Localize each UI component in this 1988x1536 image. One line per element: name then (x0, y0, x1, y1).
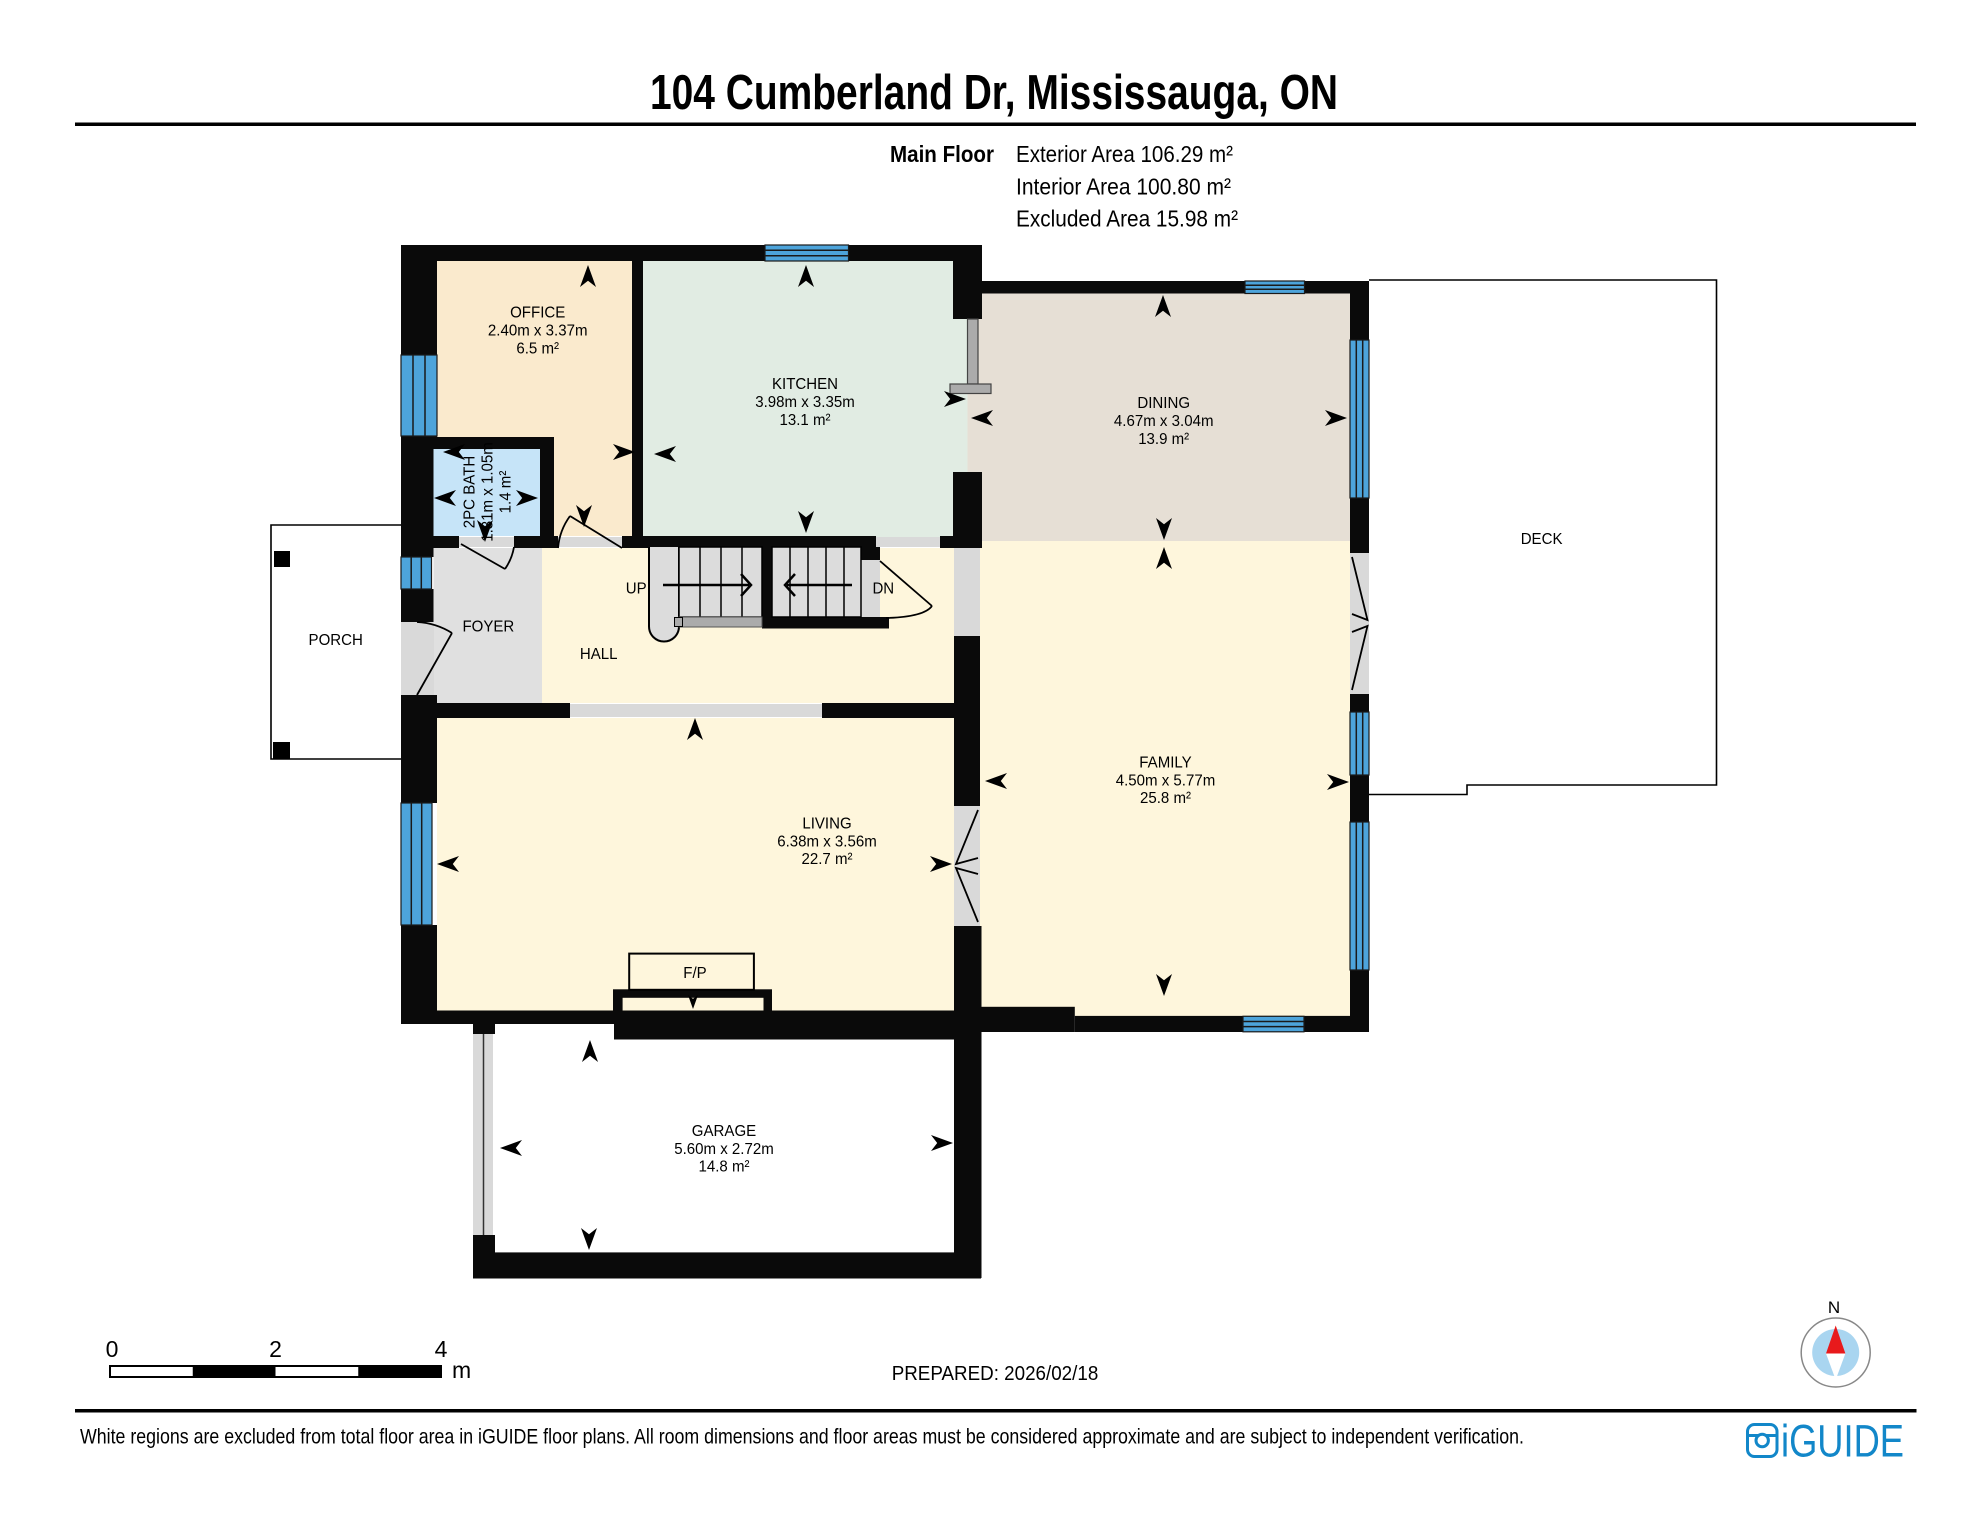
svg-text:0: 0 (106, 1336, 119, 1362)
svg-text:13.9 m²: 13.9 m² (1138, 431, 1190, 448)
svg-text:4.50m x 5.77m: 4.50m x 5.77m (1116, 772, 1216, 789)
svg-text:3.98m x 3.35m: 3.98m x 3.35m (755, 394, 855, 411)
svg-text:14.8 m²: 14.8 m² (699, 1159, 751, 1176)
svg-text:FOYER: FOYER (463, 619, 515, 636)
svg-text:PORCH: PORCH (309, 632, 363, 649)
svg-text:5.60m x 2.72m: 5.60m x 2.72m (674, 1141, 774, 1158)
svg-text:OFFICE: OFFICE (510, 305, 565, 322)
svg-text:GARAGE: GARAGE (692, 1123, 756, 1140)
svg-text:4.67m x 3.04m: 4.67m x 3.04m (1114, 413, 1214, 430)
svg-text:1.4 m²: 1.4 m² (497, 470, 514, 513)
svg-text:13.1 m²: 13.1 m² (780, 412, 832, 429)
svg-text:25.8 m²: 25.8 m² (1140, 790, 1192, 807)
svg-text:2: 2 (269, 1336, 282, 1362)
svg-text:22.7 m²: 22.7 m² (802, 851, 854, 868)
svg-text:iGUIDE: iGUIDE (1781, 1416, 1904, 1467)
svg-text:104 Cumberland Dr, Mississauga: 104 Cumberland Dr, Mississauga, ON (650, 66, 1338, 120)
svg-text:White regions are excluded fro: White regions are excluded from total fl… (80, 1426, 1524, 1449)
svg-text:6.38m x 3.56m: 6.38m x 3.56m (777, 833, 877, 850)
svg-text:DECK: DECK (1521, 531, 1563, 548)
svg-text:PREPARED: 2026/02/18: PREPARED: 2026/02/18 (892, 1363, 1099, 1385)
svg-text:DINING: DINING (1137, 395, 1190, 412)
svg-text:2.40m x 3.37m: 2.40m x 3.37m (488, 323, 588, 340)
svg-text:6.5 m²: 6.5 m² (516, 340, 559, 357)
svg-text:UP: UP (626, 580, 647, 597)
svg-text:FAMILY: FAMILY (1139, 755, 1192, 772)
svg-text:4: 4 (435, 1336, 448, 1362)
svg-text:N: N (1828, 1298, 1840, 1317)
svg-text:KITCHEN: KITCHEN (772, 376, 838, 393)
svg-text:1.31m x 1.05m: 1.31m x 1.05m (480, 442, 497, 542)
svg-text:Exterior Area 106.29 m²: Exterior Area 106.29 m² (1016, 141, 1233, 167)
svg-text:Interior Area 100.80 m²: Interior Area 100.80 m² (1016, 174, 1231, 200)
svg-text:F/P: F/P (683, 965, 706, 982)
svg-text:HALL: HALL (580, 646, 618, 663)
svg-text:2PC BATH: 2PC BATH (462, 456, 479, 529)
svg-text:Excluded Area 15.98 m²: Excluded Area 15.98 m² (1016, 206, 1238, 232)
svg-text:Main Floor: Main Floor (890, 141, 994, 167)
svg-text:LIVING: LIVING (802, 816, 851, 833)
svg-text:DN: DN (872, 580, 894, 597)
svg-text:m: m (452, 1357, 471, 1383)
